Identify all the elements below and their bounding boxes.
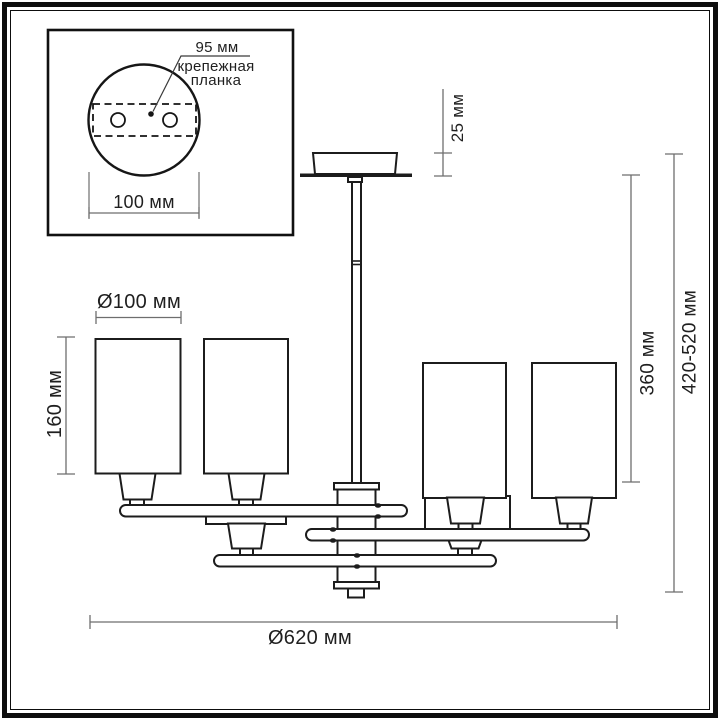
mounting-hole-right bbox=[163, 113, 177, 127]
label-shade-height: 160 мм bbox=[44, 370, 66, 438]
ceiling-canopy bbox=[313, 153, 397, 174]
socket-1 bbox=[120, 474, 156, 506]
suspension-rod bbox=[352, 179, 361, 484]
label-canopy-height: 25 мм bbox=[448, 94, 467, 143]
rear-socket-left bbox=[228, 524, 265, 556]
center-point bbox=[148, 111, 154, 117]
dim-fixture-diameter bbox=[90, 615, 617, 629]
label-fixture-diameter: Ø620 мм bbox=[268, 627, 352, 649]
hub-finial bbox=[348, 589, 364, 598]
arm-upper bbox=[120, 505, 407, 517]
arm-middle bbox=[306, 529, 589, 541]
canopy-circle bbox=[89, 65, 200, 176]
shade-4 bbox=[532, 363, 616, 498]
label-total-height: 420-520 мм bbox=[680, 290, 701, 394]
label-rod-drop: 360 мм bbox=[638, 331, 659, 396]
shade-1 bbox=[96, 339, 181, 474]
rod-collar bbox=[348, 177, 362, 182]
shade-2 bbox=[204, 339, 288, 474]
dim-rod-drop bbox=[622, 175, 640, 482]
label-plate-width: 95 мм bbox=[196, 39, 239, 56]
label-canopy-diameter: 100 мм bbox=[113, 192, 175, 212]
shade-3 bbox=[423, 363, 506, 498]
label-shade-diameter: Ø100 мм bbox=[97, 291, 181, 313]
mounting-hole-left bbox=[111, 113, 125, 127]
socket-2 bbox=[229, 474, 265, 506]
label-plate-name-2: планка bbox=[191, 72, 242, 89]
socket-4 bbox=[556, 498, 592, 531]
technical-drawing: 95 мм крепежная планка 100 мм 25 мм Ø100… bbox=[0, 0, 720, 720]
drawing-page: 95 мм крепежная планка 100 мм 25 мм Ø100… bbox=[0, 0, 720, 720]
